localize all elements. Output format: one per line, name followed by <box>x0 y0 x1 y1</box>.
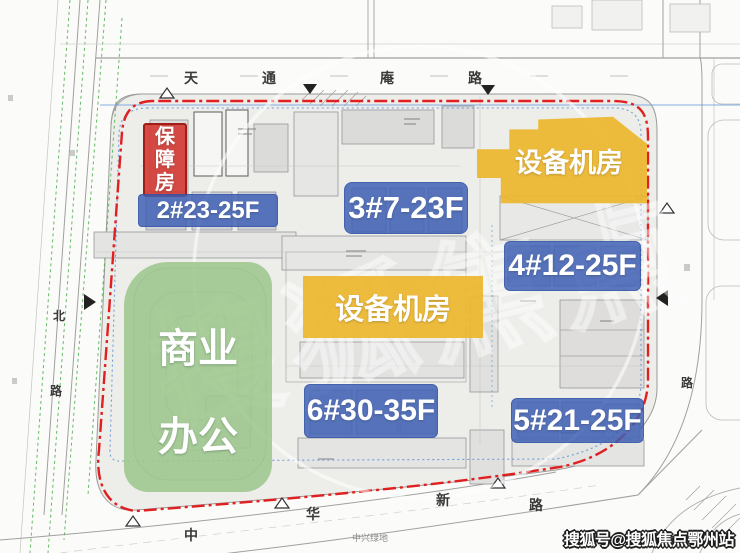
label-affordable-housing: 保障房 <box>143 123 187 197</box>
label-building-3: 3#7-23F <box>344 182 468 234</box>
top-road-char: 路 <box>468 68 482 88</box>
bottom-road-char: 华 <box>306 504 320 524</box>
top-road-char: 天 <box>184 68 198 88</box>
left-road-char: 北 <box>53 307 65 324</box>
bottom-road-char: 路 <box>529 495 543 515</box>
label-building-5: 5#21-25F <box>511 398 644 443</box>
left-road-char: 路 <box>50 382 62 399</box>
bottom-watermark-text: 搜狐号@搜狐焦点鄂州站 <box>564 526 734 550</box>
label-building-6: 6#30-35F <box>304 384 438 438</box>
label-commercial-office: 商业 办公 <box>124 262 272 492</box>
label-equipment-room-mid: 设备机房 <box>303 276 483 338</box>
label-building-4: 4#12-25F <box>504 241 641 291</box>
right-road-char: 路 <box>681 374 693 391</box>
bottom-road-char: 中 <box>184 525 198 545</box>
green-space-label: 中兴绿地 <box>352 531 388 544</box>
bottom-road-char: 新 <box>436 490 450 510</box>
top-road-char: 通 <box>262 68 276 88</box>
top-road-char: 庵 <box>380 68 394 88</box>
commercial-office-line2: 办公 <box>158 404 238 462</box>
commercial-office-line1: 商业 <box>158 316 238 374</box>
site-plan-image: 搜狐焦点 保障房 2#23-25F 3#7-23F 设备机房 4#12-25F … <box>0 0 740 553</box>
affordable-housing-text: 保障房 <box>153 126 177 195</box>
label-building-2: 2#23-25F <box>138 194 278 227</box>
